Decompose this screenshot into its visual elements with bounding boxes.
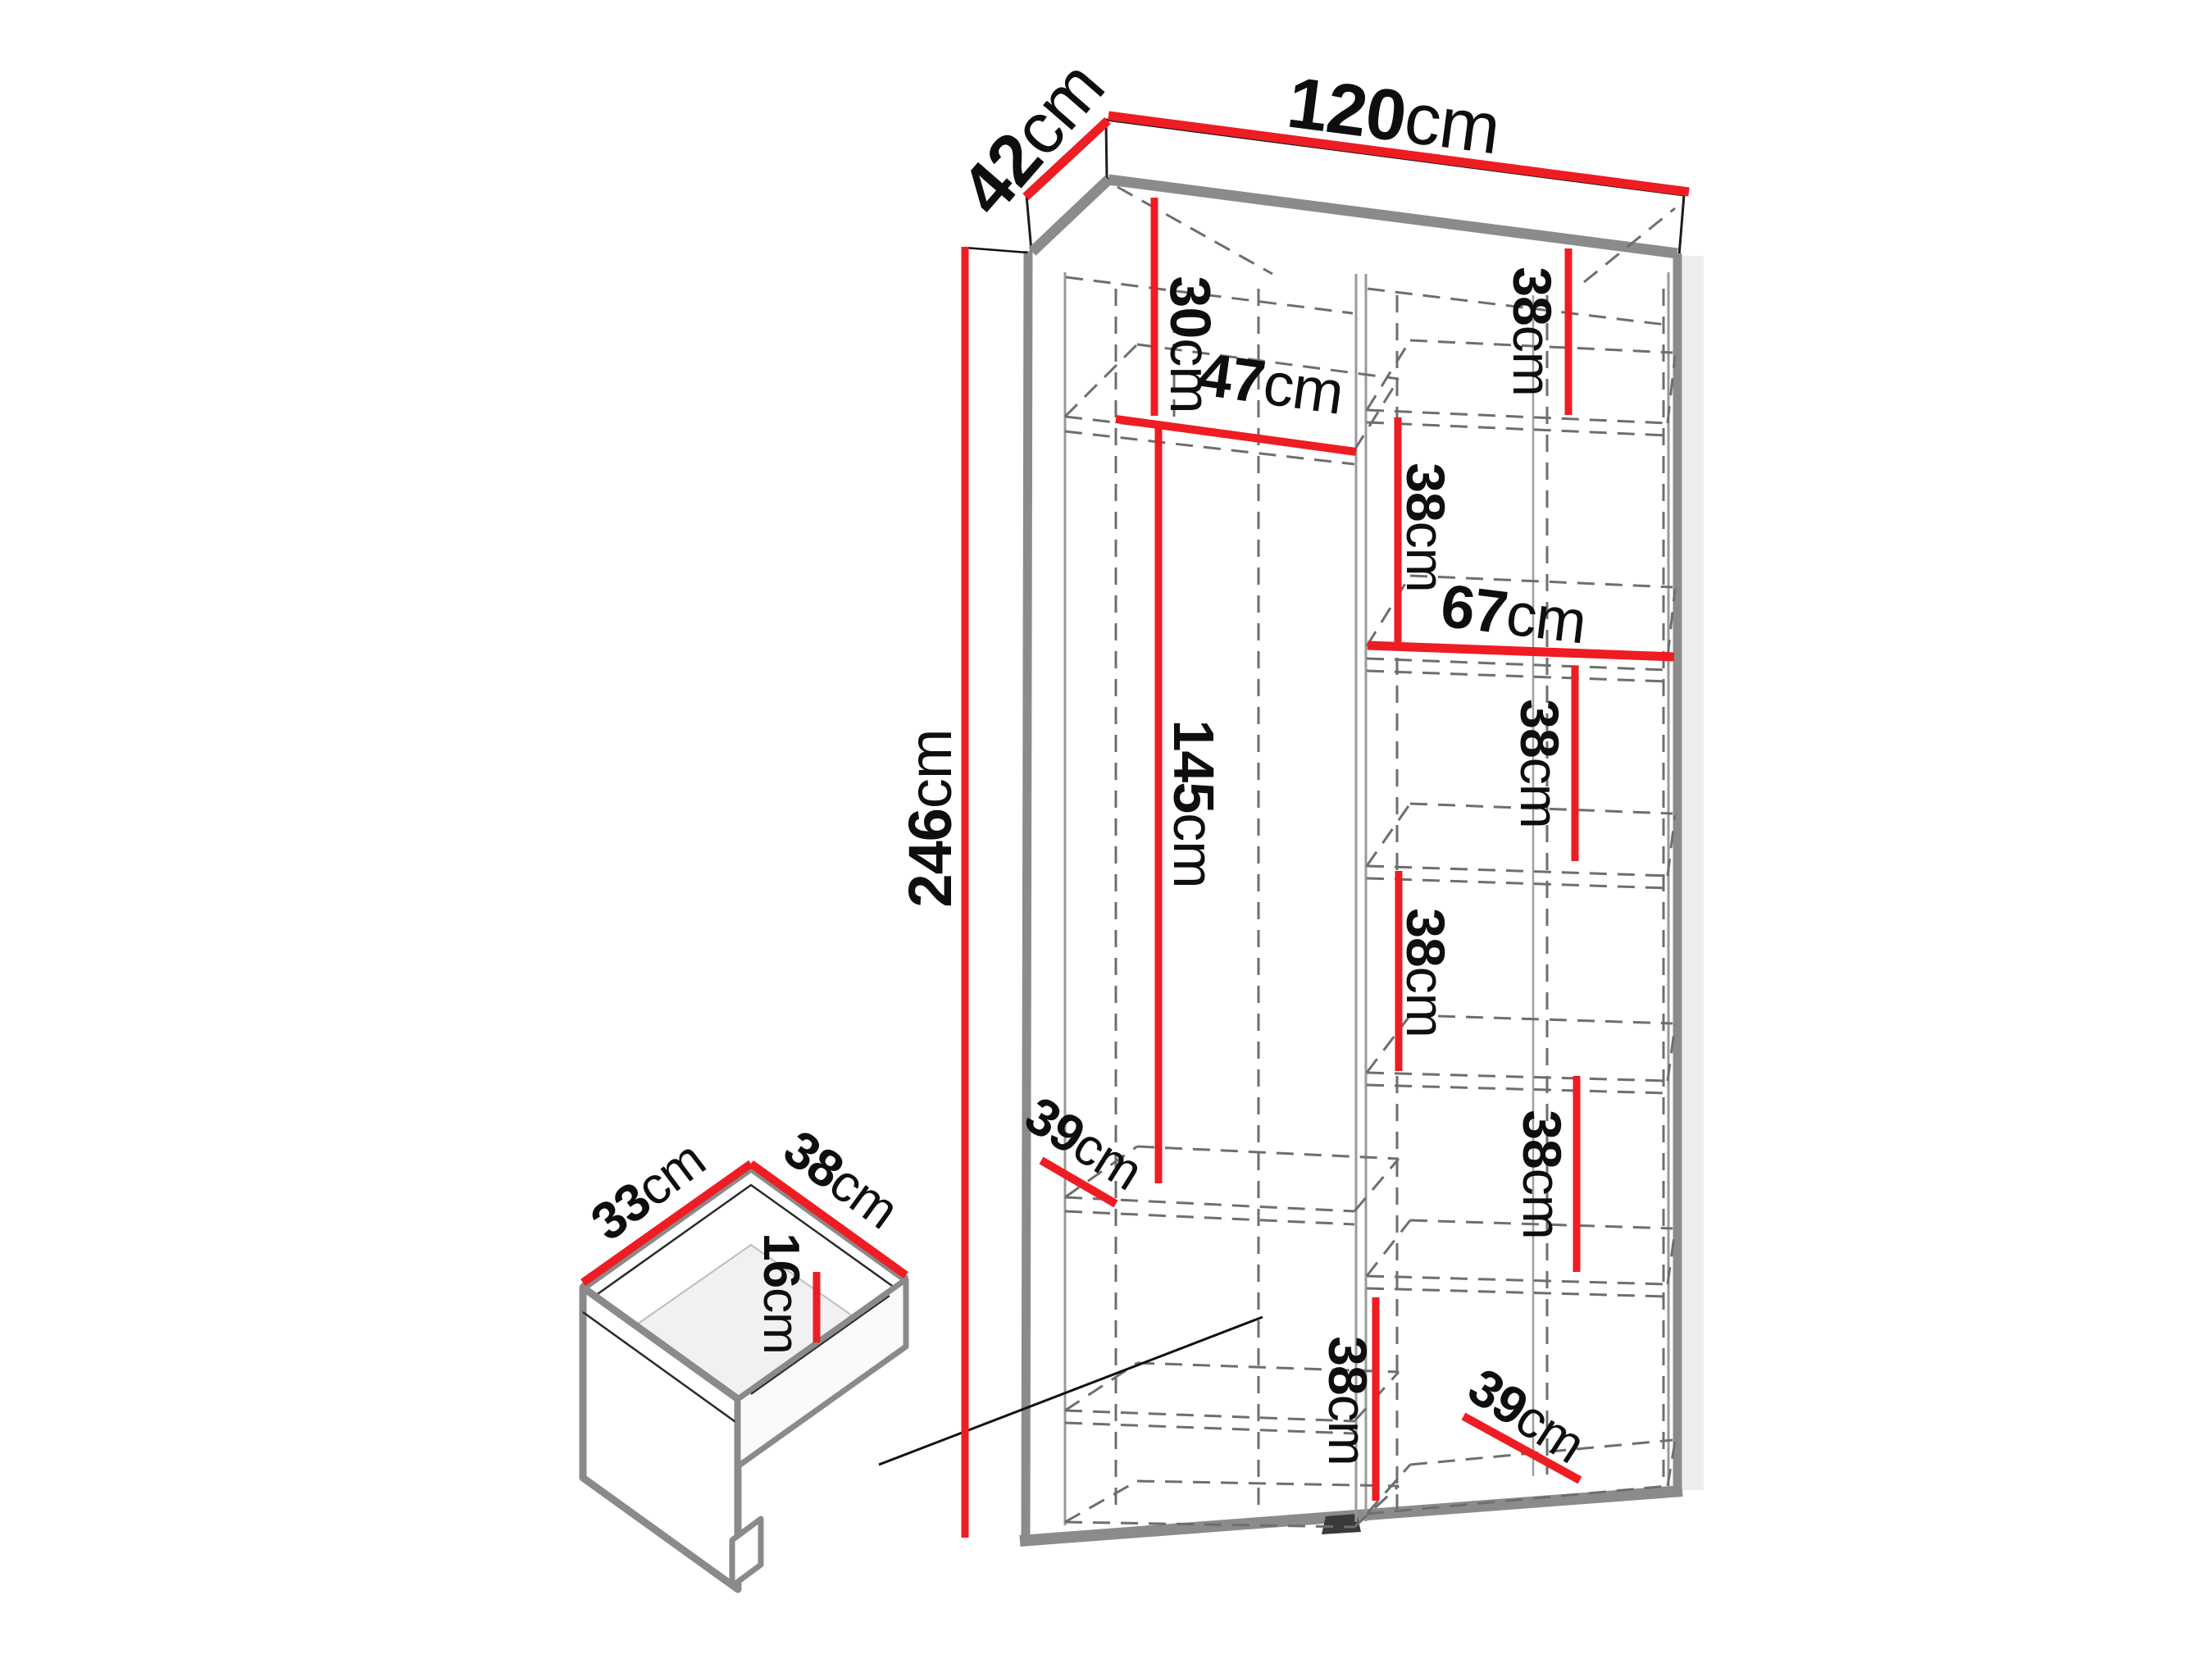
cabinet-side-shadow xyxy=(1682,256,1704,1490)
wardrobe-dimension-diagram: 120cm42cm246cm30cm47cm145cm39cm38cm38cm6… xyxy=(0,0,2212,1659)
drawer-location-pointer xyxy=(879,1317,1263,1465)
dimension-label-right-shelf-depth: 39cm xyxy=(1458,1356,1595,1474)
dimension-label-right-sec4-height: 38cm xyxy=(1395,908,1456,1037)
dimension-label-hanging-height: 145cm xyxy=(1162,719,1226,887)
diagram-canvas: 120cm42cm246cm30cm47cm145cm39cm38cm38cm6… xyxy=(0,0,2212,1659)
hidden-vertical-edges xyxy=(1116,289,1664,1514)
dimension-label-overall-height: 246cm xyxy=(896,729,964,907)
dimension-label-right-sec6-height: 38cm xyxy=(1318,1336,1378,1465)
height-dimension-tick xyxy=(965,248,1027,253)
dimension-label-right-column-width: 67cm xyxy=(1437,571,1590,656)
cabinet-left-edge xyxy=(1026,251,1028,1538)
dimension-label-drawer-inner-height: 16cm xyxy=(753,1233,810,1354)
dimension-label-drawer-width: 38cm xyxy=(773,1119,909,1240)
dimension-label-left-shelf-width: 47cm xyxy=(1195,340,1348,427)
dimension-label-right-sec5-height: 38cm xyxy=(1512,1110,1573,1238)
dimension-label-right-sec1-height: 38cm xyxy=(1502,267,1563,395)
dimension-label-right-sec3-height: 38cm xyxy=(1509,699,1570,827)
